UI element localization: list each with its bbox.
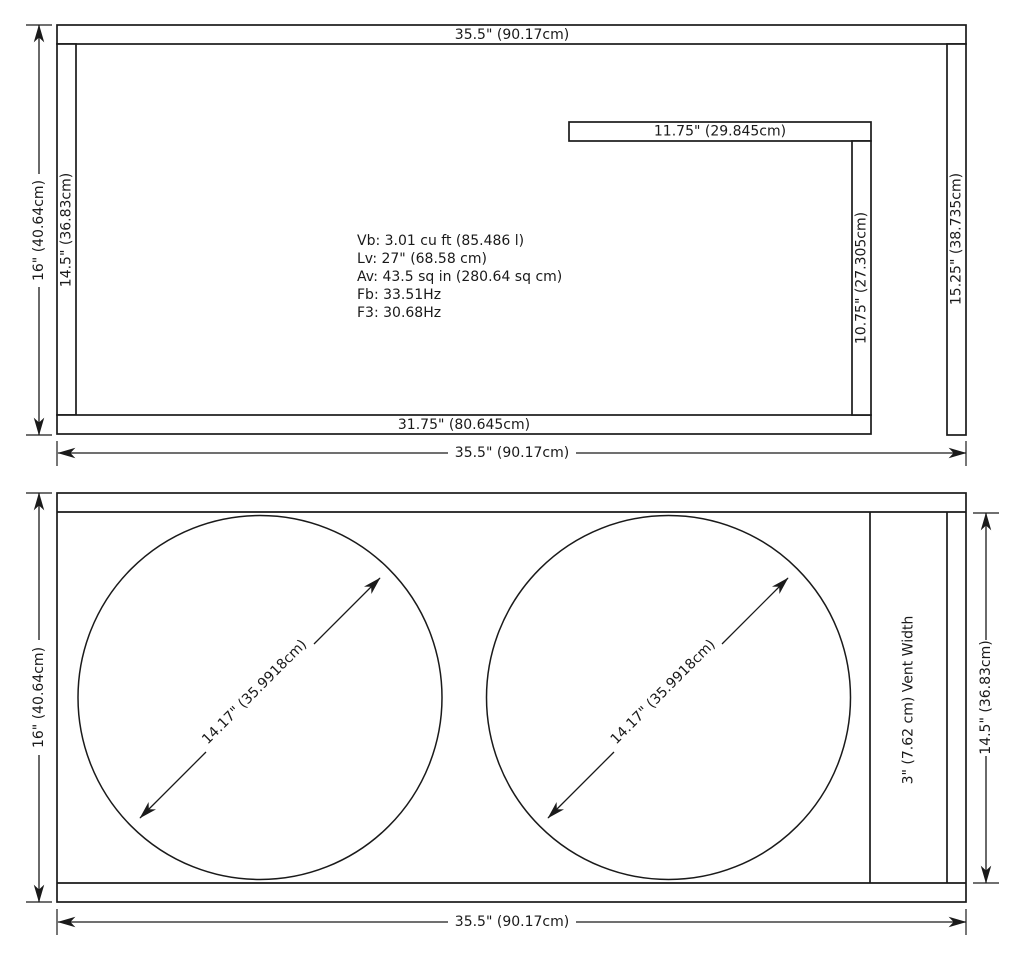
front-view-inner-height-dimension-label: 14.5" (36.83cm) xyxy=(978,640,994,754)
right-wall-label: 15.25" (38.735cm) xyxy=(949,173,965,305)
plan-drawing: 35.5" (90.17cm) 14.5" (36.83cm) 15.25" (… xyxy=(0,0,1024,960)
port-shelf-label: 11.75" (29.845cm) xyxy=(654,124,786,140)
top-view-height-dimension-arrow: 16" (40.64cm) xyxy=(26,25,52,435)
bottom-wall-label: 31.75" (80.645cm) xyxy=(398,417,530,433)
top-view-width-dimension-arrow: 35.5" (90.17cm) xyxy=(57,441,966,466)
spec-av: Av: 43.5 sq in (280.64 sq cm) xyxy=(357,269,562,285)
port-wall-label: 10.75" (27.305cm) xyxy=(854,212,870,344)
front-view-height-dimension-arrow: 16" (40.64cm) xyxy=(26,493,52,902)
top-wall-label: 35.5" (90.17cm) xyxy=(455,27,569,43)
spec-vb: Vb: 3.01 cu ft (85.486 l) xyxy=(357,233,524,249)
front-view-width-dimension-arrow: 35.5" (90.17cm) xyxy=(57,909,966,935)
speaker-box-plan: 35.5" (90.17cm) 14.5" (36.83cm) 15.25" (… xyxy=(0,0,1024,960)
front-view-height-dimension-label: 16" (40.64cm) xyxy=(31,647,47,748)
vent-width-label: 3" (7.62 cm) Vent Width xyxy=(901,616,917,785)
top-view-cross-section: 35.5" (90.17cm) 14.5" (36.83cm) 15.25" (… xyxy=(26,25,966,466)
spec-f3: F3: 30.68Hz xyxy=(357,305,441,321)
top-view-height-dimension-label: 16" (40.64cm) xyxy=(31,180,47,281)
front-view: 14.17" (35.9918cm) 14.17" (35.9918cm) 3"… xyxy=(26,493,999,935)
left-wall-label: 14.5" (36.83cm) xyxy=(59,173,75,287)
spec-lv: Lv: 27" (68.58 cm) xyxy=(357,251,487,267)
front-view-width-dimension-label: 35.5" (90.17cm) xyxy=(455,914,569,930)
front-outer-panel xyxy=(57,493,966,902)
spec-fb: Fb: 33.51Hz xyxy=(357,287,441,303)
top-view-width-dimension-label: 35.5" (90.17cm) xyxy=(455,445,569,461)
box-specs: Vb: 3.01 cu ft (85.486 l) Lv: 27" (68.58… xyxy=(357,233,562,321)
front-view-inner-height-dimension-arrow: 14.5" (36.83cm) xyxy=(973,513,999,883)
